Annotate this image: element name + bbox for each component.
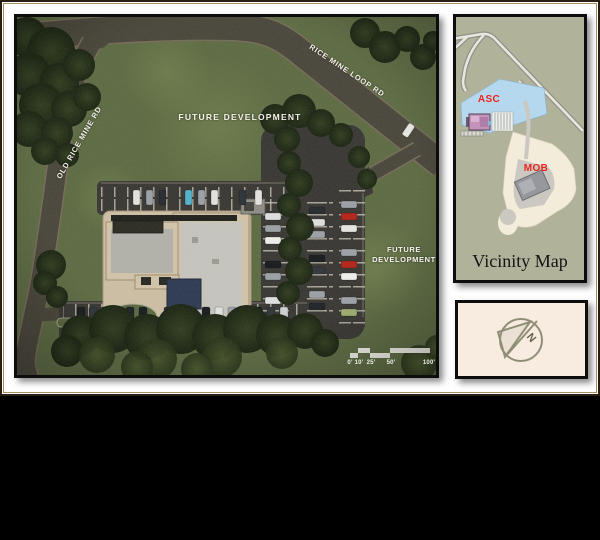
north-arrow-panel: N <box>455 300 588 379</box>
scale-label-100: 100' <box>423 360 435 366</box>
asc-site-label: ASC <box>469 94 509 105</box>
vicinity-map-title: Vicinity Map <box>456 251 584 272</box>
scale-label-0: 0' <box>347 360 352 366</box>
vicinity-map-panel: ASC MOB Vicinity Map <box>453 14 587 283</box>
site-plan-graphic <box>17 17 436 375</box>
scale-label-25: 25' <box>367 360 376 366</box>
vignette <box>17 17 436 375</box>
north-arrow-icon <box>458 303 585 376</box>
scale-label-10: 10' <box>355 360 364 366</box>
vicinity-map-graphic <box>456 17 584 280</box>
scale-label-50: 50' <box>387 360 396 366</box>
site-plan-panel: RICE MINE LOOP RD OLD RICE MINE RD FUTUR… <box>14 14 439 378</box>
mob-site-label: MOB <box>516 163 556 174</box>
page: RICE MINE LOOP RD OLD RICE MINE RD FUTUR… <box>0 0 600 540</box>
black-lower-area <box>0 396 600 540</box>
